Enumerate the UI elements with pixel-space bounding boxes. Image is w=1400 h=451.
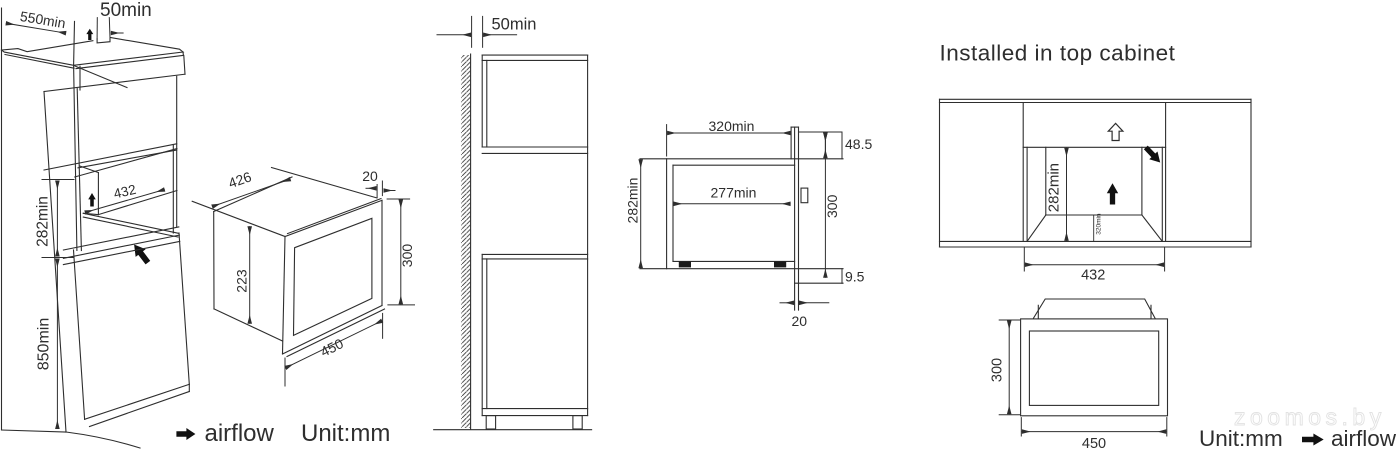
- svg-text:277min: 277min: [711, 185, 757, 201]
- svg-text:320min: 320min: [1096, 213, 1103, 235]
- svg-text:850min: 850min: [36, 318, 53, 370]
- svg-text:20: 20: [792, 313, 808, 329]
- svg-text:9.5: 9.5: [845, 269, 865, 285]
- svg-text:450: 450: [1082, 436, 1106, 451]
- svg-text:airflow: airflow: [1331, 426, 1397, 451]
- svg-text:450: 450: [318, 335, 346, 360]
- svg-text:48.5: 48.5: [845, 136, 872, 152]
- svg-text:282min: 282min: [1046, 163, 1063, 212]
- svg-text:320min: 320min: [709, 118, 755, 134]
- svg-text:223: 223: [234, 269, 250, 293]
- svg-text:432: 432: [1081, 268, 1105, 284]
- svg-text:50min: 50min: [492, 16, 537, 34]
- svg-text:Unit:mm: Unit:mm: [1199, 426, 1283, 451]
- svg-text:300: 300: [990, 358, 1006, 382]
- svg-text:20: 20: [362, 168, 378, 184]
- svg-text:282min: 282min: [625, 178, 641, 224]
- svg-text:550min: 550min: [19, 8, 67, 31]
- svg-text:300: 300: [824, 194, 840, 218]
- svg-text:300: 300: [399, 244, 415, 268]
- svg-text:50min: 50min: [100, 0, 152, 21]
- svg-text:Unit:mm: Unit:mm: [301, 420, 390, 447]
- svg-text:426: 426: [226, 168, 254, 191]
- svg-text:282min: 282min: [35, 196, 52, 247]
- svg-text:airflow: airflow: [205, 420, 275, 447]
- svg-text:Installed in top cabinet: Installed in top cabinet: [940, 41, 1176, 66]
